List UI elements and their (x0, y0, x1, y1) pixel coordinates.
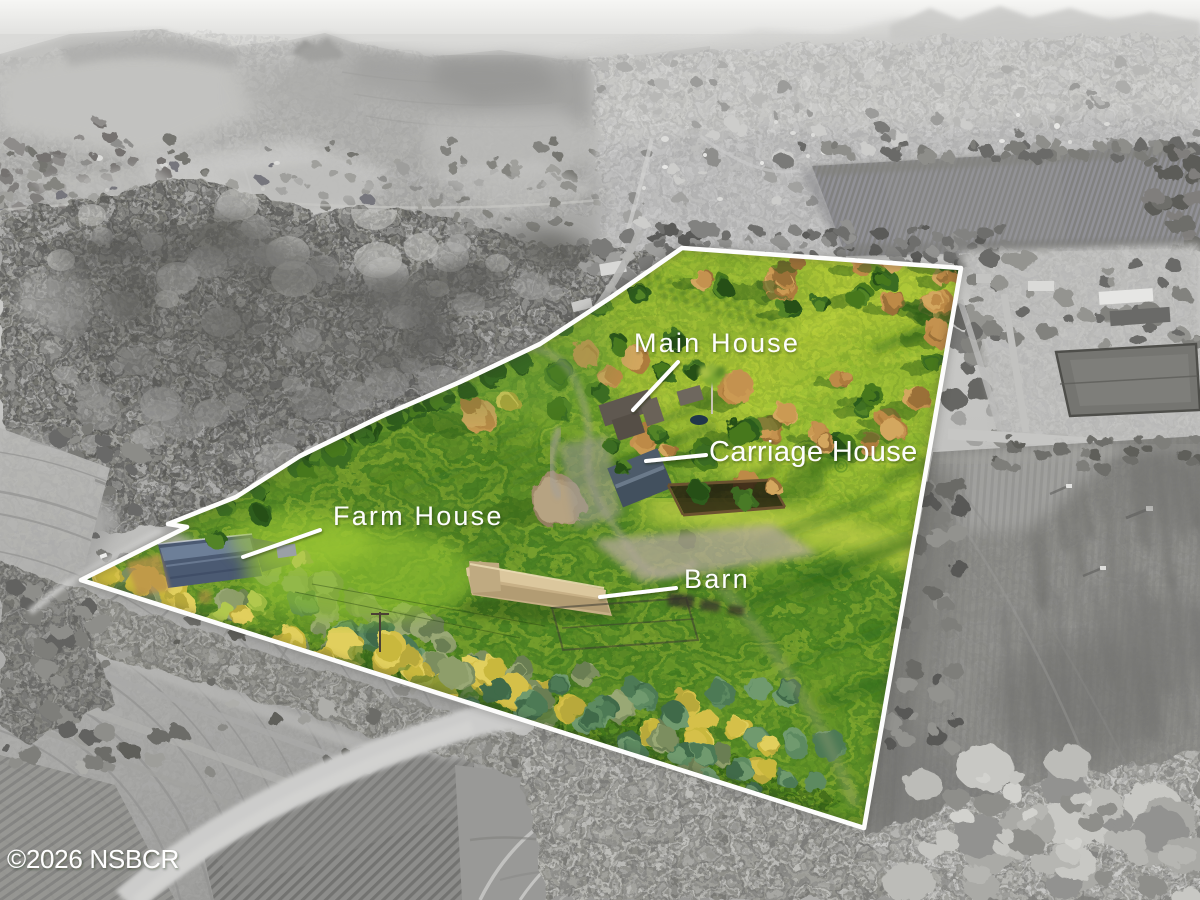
svg-text:©2026 NSBCR: ©2026 NSBCR (7, 844, 179, 874)
svg-text:Barn: Barn (684, 564, 750, 594)
svg-text:Main House: Main House (634, 328, 800, 358)
svg-text:Farm House: Farm House (333, 501, 504, 531)
svg-text:Carriage House: Carriage House (709, 436, 918, 468)
